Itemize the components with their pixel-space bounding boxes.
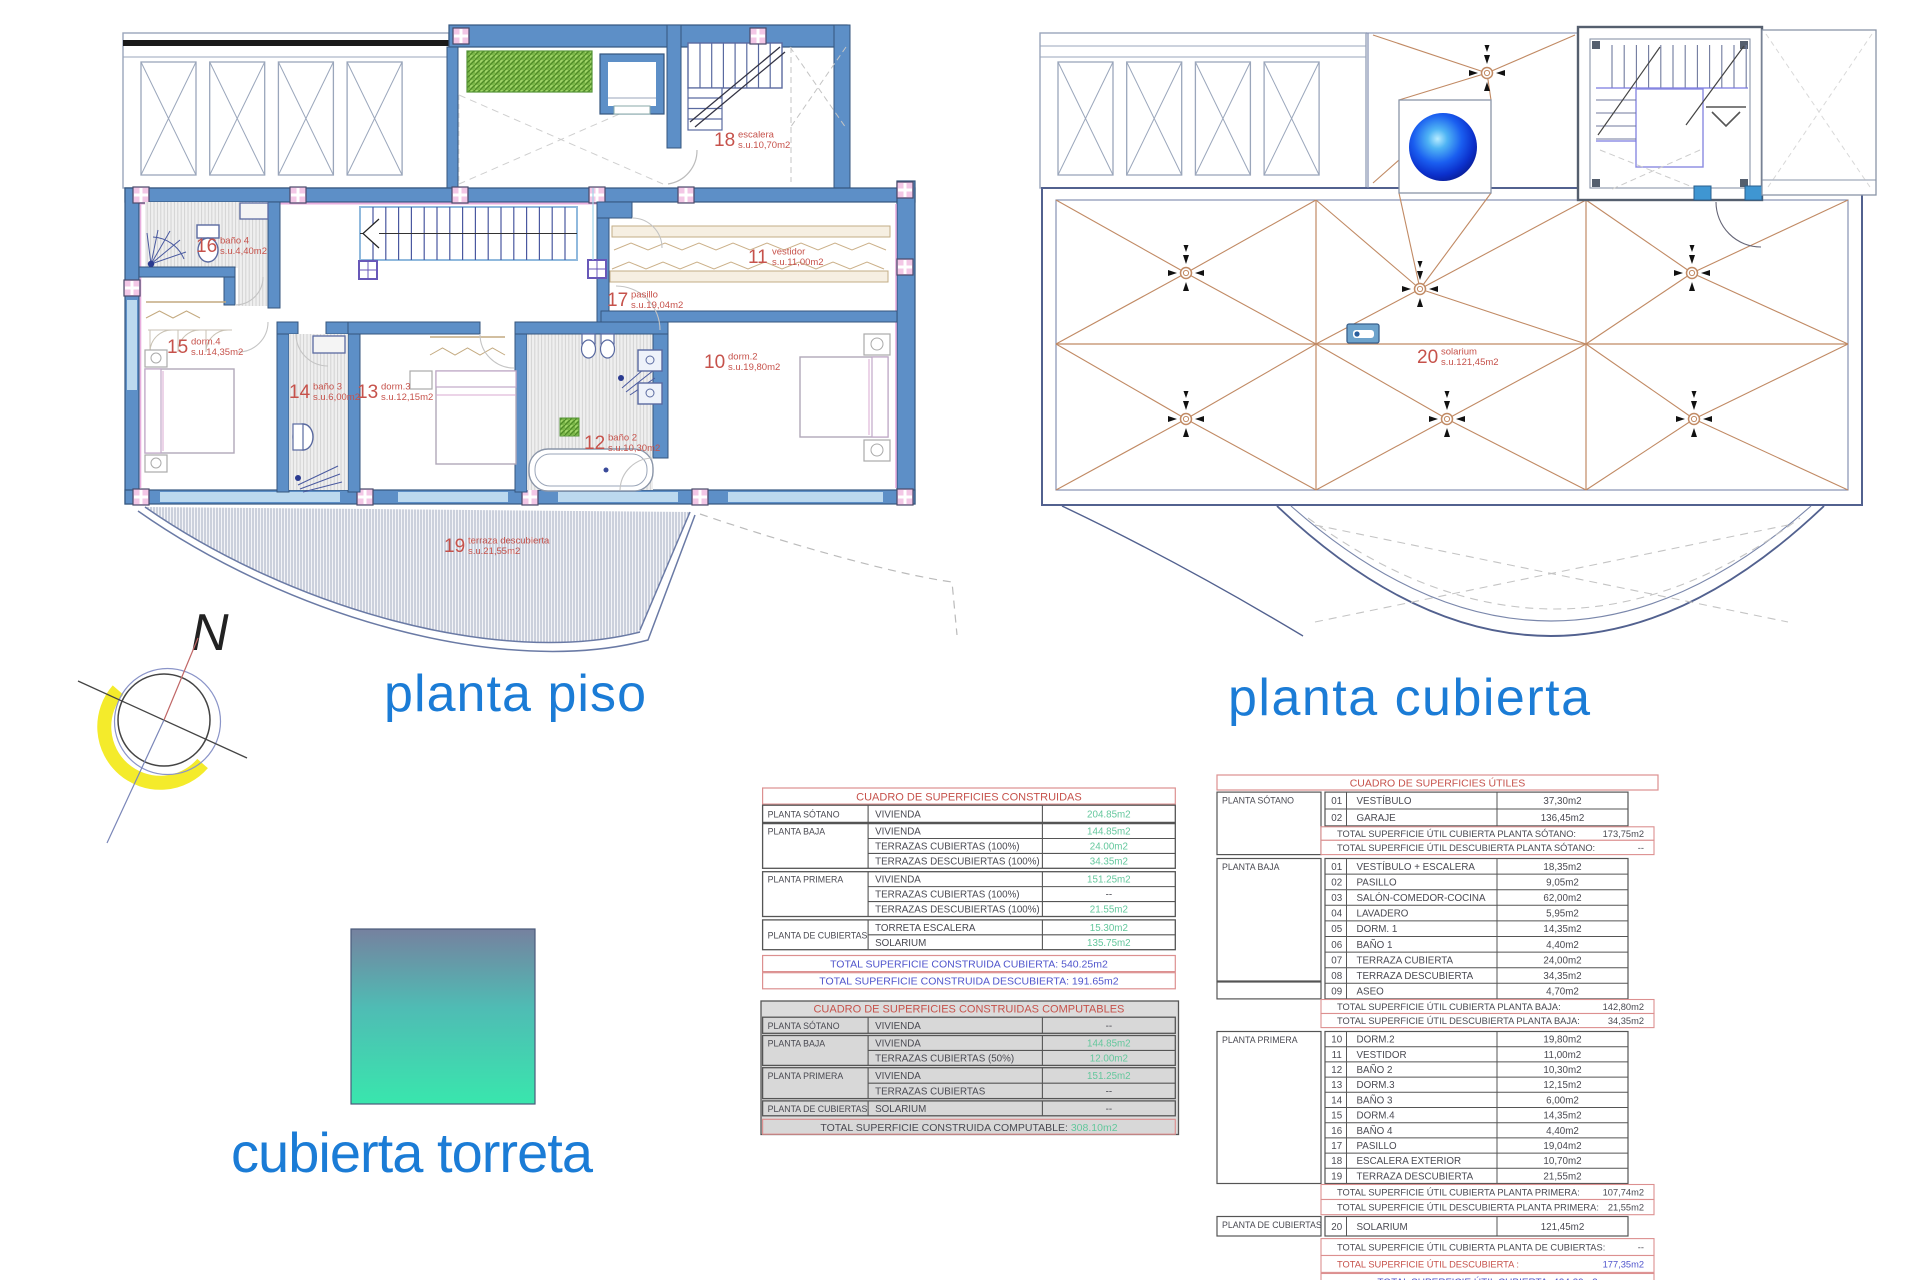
svg-text:18: 18 [714, 130, 735, 151]
svg-text:151.25m2: 151.25m2 [1087, 1071, 1131, 1082]
svg-text:14,35m2: 14,35m2 [1543, 1111, 1581, 1122]
svg-text:s.u.6,00m2: s.u.6,00m2 [313, 392, 360, 403]
svg-text:TOTAL SUPERFICIE CONSTRUIDA CO: TOTAL SUPERFICIE CONSTRUIDA COMPUTABLE: … [820, 1122, 1117, 1134]
svg-text:PLANTA DE CUBIERTAS: PLANTA DE CUBIERTAS [768, 930, 868, 940]
svg-text:solarium: solarium [1441, 347, 1477, 358]
svg-text:VIVIENDA: VIVIENDA [875, 1038, 921, 1049]
svg-text:vestidor: vestidor [772, 247, 805, 258]
svg-text:17: 17 [607, 290, 628, 311]
svg-text:03: 03 [1331, 893, 1342, 904]
svg-text:04: 04 [1331, 909, 1342, 920]
svg-text:PLANTA PRIMERA: PLANTA PRIMERA [768, 1071, 844, 1081]
svg-text:PASILLO: PASILLO [1357, 1141, 1397, 1152]
svg-text:4,40m2: 4,40m2 [1546, 940, 1579, 951]
svg-text:DORM.2: DORM.2 [1357, 1035, 1395, 1046]
svg-text:pasillo: pasillo [631, 290, 658, 301]
svg-text:09: 09 [1331, 987, 1342, 998]
svg-text:SOLARIUM: SOLARIUM [875, 938, 926, 949]
svg-text:21.55m2: 21.55m2 [1090, 905, 1128, 916]
svg-text:SOLARIUM: SOLARIUM [875, 1104, 926, 1115]
svg-text:TERRAZA DESCUBIERTA: TERRAZA DESCUBIERTA [1357, 1171, 1474, 1182]
svg-text:6,00m2: 6,00m2 [1546, 1095, 1579, 1106]
svg-text:5,95m2: 5,95m2 [1546, 909, 1579, 920]
svg-text:TERRAZAS CUBIERTAS (100%): TERRAZAS CUBIERTAS (100%) [875, 841, 1019, 852]
svg-text:VIVIENDA: VIVIENDA [875, 875, 921, 886]
svg-text:BAÑO 1: BAÑO 1 [1357, 940, 1393, 951]
svg-text:12.00m2: 12.00m2 [1090, 1053, 1128, 1064]
svg-text:11,00m2: 11,00m2 [1544, 1050, 1581, 1061]
svg-text:PLANTA PRIMERA: PLANTA PRIMERA [1222, 1035, 1298, 1045]
svg-text:PLANTA BAJA: PLANTA BAJA [768, 827, 826, 837]
svg-text:--: -- [1106, 1021, 1113, 1032]
svg-text:TOTAL SUPERFICIE ÚTIL DESCUBIE: TOTAL SUPERFICIE ÚTIL DESCUBIERTA : [1337, 1259, 1519, 1269]
svg-text:21,55m2: 21,55m2 [1608, 1202, 1644, 1212]
svg-text:20: 20 [1331, 1222, 1342, 1233]
svg-text:CUADRO DE SUPERFICIES ÚTILES: CUADRO DE SUPERFICIES ÚTILES [1350, 777, 1526, 790]
svg-text:DORM.4: DORM.4 [1357, 1111, 1396, 1122]
svg-text:62,00m2: 62,00m2 [1543, 893, 1581, 904]
svg-text:terraza descubierta: terraza descubierta [468, 536, 550, 547]
svg-text:s.u.4,40m2: s.u.4,40m2 [220, 246, 267, 257]
svg-text:15.30m2: 15.30m2 [1090, 923, 1128, 934]
svg-text:s.u.21,55m2: s.u.21,55m2 [468, 546, 520, 557]
svg-text:05: 05 [1331, 924, 1342, 935]
svg-text:BAÑO 3: BAÑO 3 [1357, 1095, 1393, 1106]
svg-text:21,55m2: 21,55m2 [1543, 1171, 1581, 1182]
svg-text:TOTAL SUPERFICIE CONSTRUIDA DE: TOTAL SUPERFICIE CONSTRUIDA DESCUBIERTA:… [819, 976, 1118, 988]
svg-text:37,30m2: 37,30m2 [1543, 796, 1581, 807]
svg-text:TOTAL SUPERFICIE ÚTIL DESCUBIE: TOTAL SUPERFICIE ÚTIL DESCUBIERTA PLANTA… [1337, 1202, 1599, 1212]
svg-text:s.u.121,45m2: s.u.121,45m2 [1441, 357, 1499, 368]
svg-text:06: 06 [1331, 940, 1342, 951]
svg-text:TOTAL SUPERFICIE ÚTIL CUBIERTA: TOTAL SUPERFICIE ÚTIL CUBIERTA PLANTA PR… [1337, 1187, 1580, 1197]
svg-text:107,74m2: 107,74m2 [1603, 1187, 1644, 1197]
svg-text:TOTAL SUPERFICIE ÚTIL CUBIERTA: TOTAL SUPERFICIE ÚTIL CUBIERTA PLANTA DE… [1337, 1242, 1605, 1252]
svg-text:9,05m2: 9,05m2 [1546, 877, 1579, 888]
svg-text:TORRETA ESCALERA: TORRETA ESCALERA [875, 923, 976, 934]
svg-text:10,30m2: 10,30m2 [1543, 1065, 1581, 1076]
svg-text:--: -- [1638, 843, 1644, 853]
svg-text:PASILLO: PASILLO [1357, 877, 1397, 888]
svg-text:PLANTA SÓTANO: PLANTA SÓTANO [768, 809, 840, 819]
svg-text:VIVIENDA: VIVIENDA [875, 1021, 921, 1032]
svg-text:LAVADERO: LAVADERO [1357, 909, 1409, 920]
svg-text:19,80m2: 19,80m2 [1543, 1035, 1581, 1046]
svg-text:PLANTA DE CUBIERTAS: PLANTA DE CUBIERTAS [768, 1104, 868, 1114]
svg-text:DORM.3: DORM.3 [1357, 1080, 1396, 1091]
svg-text:204.85m2: 204.85m2 [1087, 809, 1131, 820]
svg-text:151.25m2: 151.25m2 [1087, 875, 1131, 886]
svg-text:--: -- [1106, 1086, 1113, 1097]
svg-text:14,35m2: 14,35m2 [1543, 924, 1581, 935]
svg-text:VIVIENDA: VIVIENDA [875, 809, 921, 820]
svg-text:TOTAL SUPERFICIE ÚTIL DESCUBIE: TOTAL SUPERFICIE ÚTIL DESCUBIERTA PLANTA… [1337, 843, 1595, 853]
svg-text:08: 08 [1331, 971, 1342, 982]
svg-text:s.u.19,80m2: s.u.19,80m2 [728, 362, 780, 373]
svg-text:11: 11 [1332, 1050, 1342, 1061]
svg-text:142,80m2: 142,80m2 [1603, 1002, 1644, 1012]
svg-text:11: 11 [748, 247, 768, 268]
svg-text:121,45m2: 121,45m2 [1541, 1222, 1585, 1233]
svg-text:PLANTA DE CUBIERTAS: PLANTA DE CUBIERTAS [1222, 1220, 1322, 1230]
svg-text:18: 18 [1331, 1156, 1342, 1167]
svg-text:cubierta torreta: cubierta torreta [231, 1121, 594, 1184]
svg-text:13: 13 [1331, 1080, 1342, 1091]
svg-text:dorm.2: dorm.2 [728, 352, 758, 363]
svg-text:14: 14 [1331, 1095, 1342, 1106]
svg-text:12: 12 [584, 433, 605, 454]
svg-text:02: 02 [1331, 877, 1342, 888]
svg-text:16: 16 [1331, 1126, 1342, 1137]
svg-text:12,15m2: 12,15m2 [1543, 1080, 1581, 1091]
svg-text:18,35m2: 18,35m2 [1543, 862, 1581, 873]
svg-text:34.35m2: 34.35m2 [1090, 856, 1128, 867]
svg-text:TOTAL SUPERFICIE ÚTIL CUBIERTA: TOTAL SUPERFICIE ÚTIL CUBIERTA PLANTA BA… [1337, 1002, 1561, 1012]
svg-text:TOTAL SUPERFICIE ÚTIL CUBIERTA: TOTAL SUPERFICIE ÚTIL CUBIERTA PLANTA SÓ… [1337, 829, 1576, 839]
svg-text:34,35m2: 34,35m2 [1608, 1016, 1644, 1026]
svg-text:escalera: escalera [738, 130, 775, 141]
svg-text:19: 19 [444, 536, 465, 557]
svg-text:s.u.12,15m2: s.u.12,15m2 [381, 392, 433, 403]
svg-text:TOTAL SUPERFICIE ÚTIL DESCUBIE: TOTAL SUPERFICIE ÚTIL DESCUBIERTA PLANTA… [1337, 1016, 1580, 1026]
svg-text:baño 2: baño 2 [608, 433, 637, 444]
svg-text:ESCALERA EXTERIOR: ESCALERA EXTERIOR [1357, 1156, 1462, 1167]
svg-text:10: 10 [704, 352, 725, 373]
svg-text:VESTÍBULO: VESTÍBULO [1357, 796, 1412, 807]
svg-text:TERRAZAS DESCUBIERTAS (100%): TERRAZAS DESCUBIERTAS (100%) [875, 856, 1040, 867]
svg-text:15: 15 [167, 337, 188, 358]
svg-text:GARAJE: GARAJE [1357, 813, 1397, 824]
svg-text:N: N [191, 604, 229, 662]
svg-text:PLANTA SÓTANO: PLANTA SÓTANO [1222, 796, 1294, 806]
svg-text:34,35m2: 34,35m2 [1543, 971, 1581, 982]
svg-text:s.u.11,00m2: s.u.11,00m2 [772, 257, 824, 268]
svg-text:VESTIDOR: VESTIDOR [1357, 1050, 1407, 1061]
svg-text:13: 13 [357, 382, 378, 403]
svg-text:173,75m2: 173,75m2 [1603, 829, 1644, 839]
svg-text:VIVIENDA: VIVIENDA [875, 827, 921, 838]
svg-text:--: -- [1106, 890, 1113, 901]
svg-text:VIVIENDA: VIVIENDA [875, 1071, 921, 1082]
svg-text:136,45m2: 136,45m2 [1541, 813, 1585, 824]
svg-text:planta piso: planta piso [384, 665, 646, 723]
svg-text:144.85m2: 144.85m2 [1087, 1038, 1131, 1049]
svg-text:s.u.14,35m2: s.u.14,35m2 [191, 347, 243, 358]
svg-text:SALÓN-COMEDOR-COCINA: SALÓN-COMEDOR-COCINA [1357, 893, 1486, 904]
svg-text:177,35m2: 177,35m2 [1603, 1259, 1644, 1269]
svg-text:17: 17 [1331, 1141, 1342, 1152]
svg-text:PLANTA SÓTANO: PLANTA SÓTANO [768, 1021, 840, 1031]
svg-text:16: 16 [196, 236, 217, 257]
svg-text:BAÑO 2: BAÑO 2 [1357, 1065, 1393, 1076]
svg-text:12: 12 [1331, 1065, 1342, 1076]
svg-text:dorm.4: dorm.4 [191, 337, 221, 348]
svg-text:144.85m2: 144.85m2 [1087, 827, 1131, 838]
svg-text:TERRAZA DESCUBIERTA: TERRAZA DESCUBIERTA [1357, 971, 1474, 982]
svg-text:SOLARIUM: SOLARIUM [1357, 1222, 1408, 1233]
svg-text:01: 01 [1331, 796, 1342, 807]
svg-text:10: 10 [1331, 1035, 1342, 1046]
svg-text:TERRAZAS DESCUBIERTAS (100%): TERRAZAS DESCUBIERTAS (100%) [875, 905, 1040, 916]
svg-text:10,70m2: 10,70m2 [1543, 1156, 1581, 1167]
svg-text:CUADRO DE SUPERFICIES CONSTRUI: CUADRO DE SUPERFICIES CONSTRUIDAS [856, 792, 1082, 804]
svg-text:DORM. 1: DORM. 1 [1357, 924, 1398, 935]
svg-text:baño 4: baño 4 [220, 236, 249, 247]
svg-text:19,04m2: 19,04m2 [1543, 1141, 1581, 1152]
svg-text:baño 3: baño 3 [313, 382, 342, 393]
svg-text:s.u.19,04m2: s.u.19,04m2 [631, 300, 683, 311]
svg-text:dorm.3: dorm.3 [381, 382, 411, 393]
svg-text:PLANTA BAJA: PLANTA BAJA [768, 1038, 826, 1048]
svg-text:24,00m2: 24,00m2 [1543, 955, 1581, 966]
svg-text:s.u.10,70m2: s.u.10,70m2 [738, 140, 790, 151]
svg-text:14: 14 [289, 382, 311, 403]
svg-text:PLANTA BAJA: PLANTA BAJA [1222, 862, 1280, 872]
svg-text:BAÑO 4: BAÑO 4 [1357, 1126, 1393, 1137]
svg-text:TERRAZAS CUBIERTAS: TERRAZAS CUBIERTAS [875, 1086, 986, 1097]
svg-text:20: 20 [1417, 347, 1438, 368]
svg-text:planta cubierta: planta cubierta [1228, 669, 1590, 727]
svg-text:CUADRO DE SUPERFICIES CONSTRUI: CUADRO DE SUPERFICIES CONSTRUIDAS COMPUT… [813, 1004, 1124, 1016]
svg-text:TOTAL SUPERFICIE CONSTRUIDA CU: TOTAL SUPERFICIE CONSTRUIDA CUBIERTA: 54… [830, 959, 1108, 971]
svg-text:--: -- [1106, 1104, 1113, 1115]
svg-text:s.u.10,30m2: s.u.10,30m2 [608, 443, 660, 454]
svg-text:PLANTA PRIMERA: PLANTA PRIMERA [768, 875, 844, 885]
svg-text:VESTÍBULO + ESCALERA: VESTÍBULO + ESCALERA [1357, 862, 1476, 873]
svg-text:4,40m2: 4,40m2 [1546, 1126, 1579, 1137]
svg-text:15: 15 [1331, 1111, 1342, 1122]
svg-text:01: 01 [1331, 862, 1342, 873]
svg-text:24.00m2: 24.00m2 [1090, 841, 1128, 852]
svg-text:TERRAZA CUBIERTA: TERRAZA CUBIERTA [1357, 955, 1454, 966]
svg-text:02: 02 [1331, 813, 1342, 824]
svg-text:4,70m2: 4,70m2 [1546, 987, 1579, 998]
svg-text:TERRAZAS CUBIERTAS (100%): TERRAZAS CUBIERTAS (100%) [875, 890, 1019, 901]
svg-text:19: 19 [1331, 1171, 1342, 1182]
svg-text:TERRAZAS CUBIERTAS (50%): TERRAZAS CUBIERTAS (50%) [875, 1053, 1014, 1064]
svg-text:--: -- [1638, 1242, 1644, 1252]
svg-text:ASEO: ASEO [1357, 987, 1385, 998]
svg-text:135.75m2: 135.75m2 [1087, 938, 1131, 949]
svg-text:07: 07 [1331, 955, 1342, 966]
